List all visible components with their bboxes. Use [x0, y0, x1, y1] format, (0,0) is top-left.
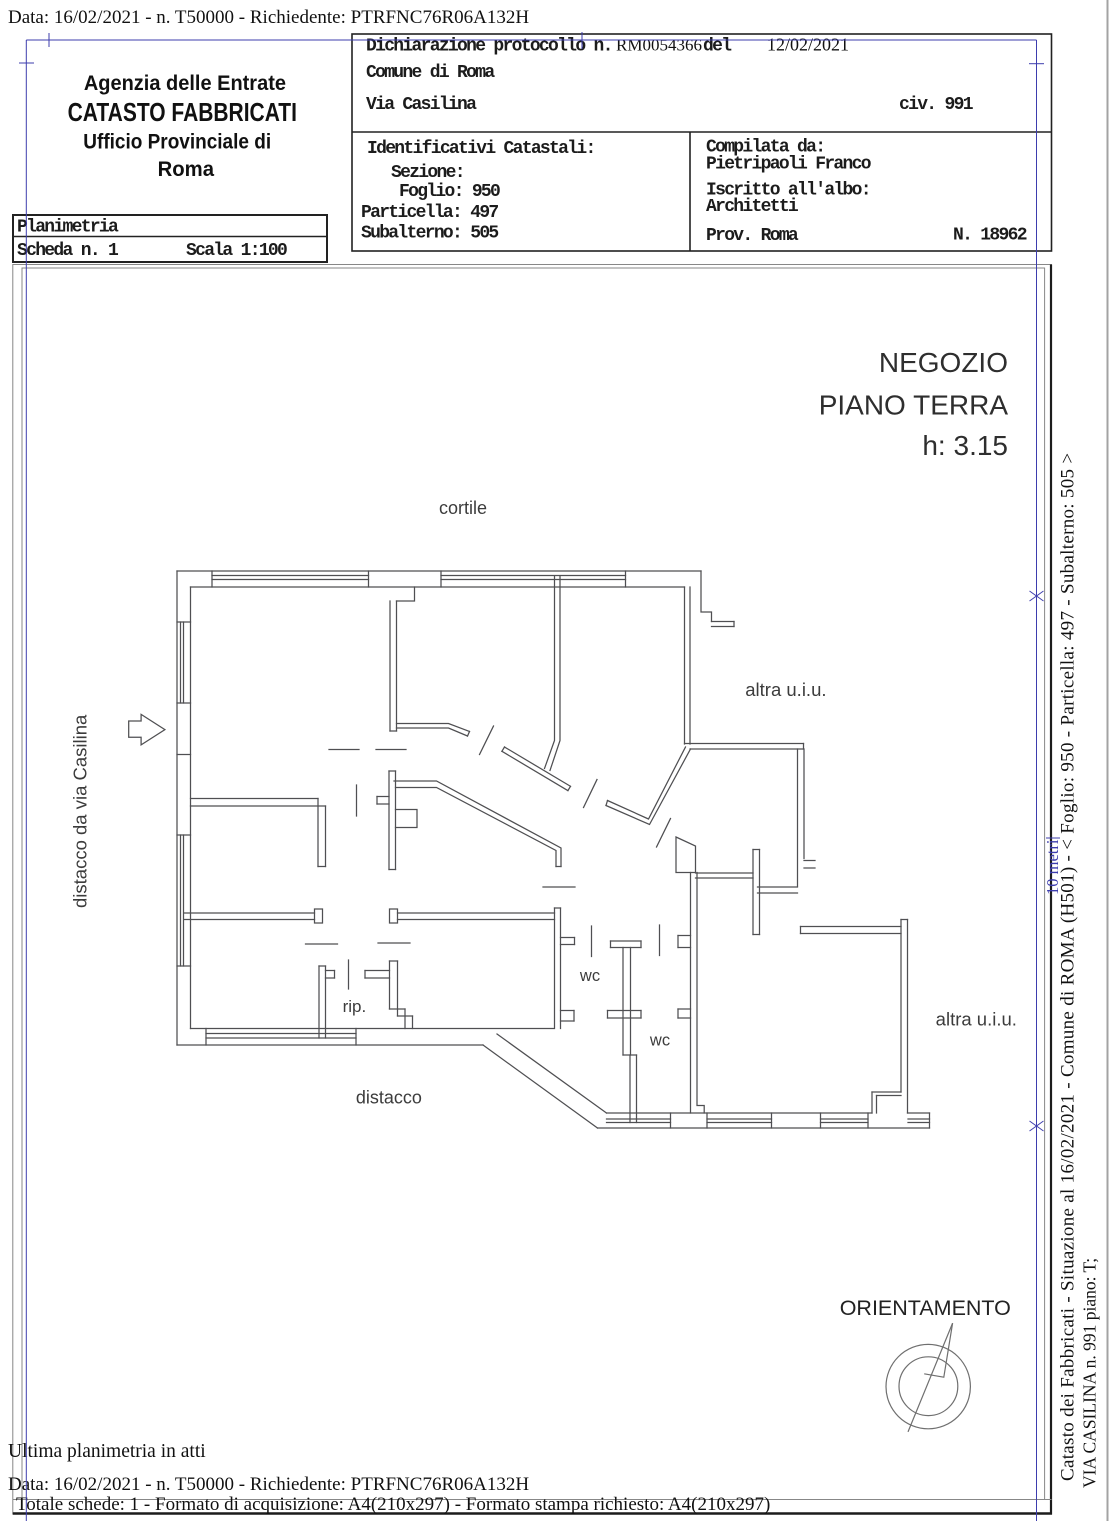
svg-text:wc: wc	[579, 967, 600, 985]
svg-text:Pietripaoli Franco: Pietripaoli Franco	[706, 155, 871, 175]
svg-text:CATASTO FABBRICATI: CATASTO FABBRICATI	[68, 99, 297, 128]
svg-text:Ultima planimetria in atti: Ultima planimetria in atti	[8, 1441, 206, 1462]
svg-text:civ. 991: civ. 991	[899, 95, 974, 115]
svg-text:distacco: distacco	[356, 1088, 422, 1108]
svg-text:Data: 16/02/2021 - n. T50000 -: Data: 16/02/2021 - n. T50000 - Richieden…	[8, 1474, 529, 1495]
svg-text:12/02/2021: 12/02/2021	[767, 35, 849, 55]
svg-text:Comune di Roma: Comune di Roma	[366, 63, 495, 83]
svg-text:Via Casilina: Via Casilina	[366, 95, 477, 115]
svg-text:rip.: rip.	[343, 997, 367, 1016]
svg-text:Scala 1:100: Scala 1:100	[186, 241, 287, 261]
svg-text:Architetti: Architetti	[706, 197, 799, 217]
svg-text:Scheda n. 1: Scheda n. 1	[17, 241, 119, 261]
svg-text:ORIENTAMENTO: ORIENTAMENTO	[840, 1296, 1011, 1320]
svg-text:Roma: Roma	[158, 157, 215, 181]
svg-text:PIANO TERRA: PIANO TERRA	[819, 390, 1009, 421]
svg-text:RM0054366: RM0054366	[616, 36, 702, 55]
svg-text:cortile: cortile	[439, 498, 487, 518]
svg-text:Prov. Roma: Prov. Roma	[706, 226, 799, 246]
svg-text:wc: wc	[649, 1032, 670, 1050]
svg-text:10 metri: 10 metri	[1043, 839, 1062, 895]
svg-text:h: 3.15: h: 3.15	[922, 430, 1008, 461]
svg-text:Planimetria: Planimetria	[17, 218, 119, 238]
svg-text:altra u.i.u.: altra u.i.u.	[936, 1009, 1017, 1030]
svg-text:Sezione:: Sezione:	[391, 163, 464, 183]
svg-text:Foglio: 950: Foglio: 950	[399, 182, 500, 202]
svg-text:Particella: 497: Particella: 497	[361, 203, 498, 223]
svg-text:Agenzia delle Entrate: Agenzia delle Entrate	[84, 71, 286, 95]
svg-text:Identificativi Catastali:: Identificativi Catastali:	[367, 139, 595, 159]
svg-text:Totale schede: 1 - Formato di: Totale schede: 1 - Formato di acquisizio…	[16, 1494, 770, 1515]
svg-text:Catasto dei Fabbricati - Situa: Catasto dei Fabbricati - Situazione al 1…	[1058, 453, 1079, 1481]
svg-text:distacco da via Casilina: distacco da via Casilina	[70, 714, 91, 908]
svg-text:Subalterno: 505: Subalterno: 505	[361, 224, 498, 244]
svg-text:VIA CASILINA n. 991 piano: T;: VIA CASILINA n. 991 piano: T;	[1080, 1258, 1100, 1488]
svg-text:Ufficio Provinciale di: Ufficio Provinciale di	[83, 130, 271, 153]
svg-text:Data: 16/02/2021 - n. T50000 -: Data: 16/02/2021 - n. T50000 - Richieden…	[8, 7, 529, 28]
svg-text:NEGOZIO: NEGOZIO	[879, 347, 1008, 378]
svg-text:altra u.i.u.: altra u.i.u.	[745, 679, 826, 700]
svg-text:N. 18962: N. 18962	[953, 226, 1027, 246]
